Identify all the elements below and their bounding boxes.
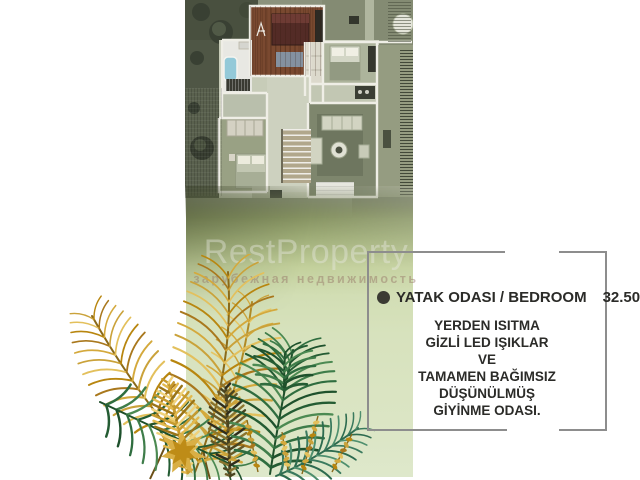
railing-hatch [400, 50, 413, 197]
room-header: YATAK ODASI / BEDROOM 32.50 m2 [377, 288, 605, 306]
feature-line: TAMAMEN BAĞIMSIZ DÜŞÜNÜLMÜŞ [371, 368, 603, 402]
wood-floor-texture [250, 6, 324, 76]
page: RestProperty зарубежная недвижимость YAT… [0, 0, 640, 480]
box-border-right [605, 251, 607, 431]
deck-hatch [388, 2, 411, 42]
feature-list: YERDEN ISITMA GİZLİ LED IŞIKLAR VE TAMAM… [371, 317, 603, 419]
room-area: 32.50 m2 [603, 288, 640, 306]
box-border-bottom-left [367, 429, 507, 431]
garden-texture [185, 88, 222, 196]
feature-line: YERDEN ISITMA [371, 317, 603, 334]
room-title: YATAK ODASI / BEDROOM [396, 289, 587, 306]
staircase [281, 129, 311, 183]
feature-line: GİZLİ LED IŞIKLAR [371, 334, 603, 351]
feature-line: GİYİNME ODASI. [371, 402, 603, 419]
box-border-left [367, 251, 369, 431]
box-border-top-right [559, 251, 607, 253]
box-border-top-left [367, 251, 505, 253]
bullet-icon [377, 291, 390, 304]
bath-mat-texture [226, 79, 250, 91]
bedroom-left [219, 118, 267, 192]
box-border-bottom-right [559, 429, 607, 431]
room-info-box: YATAK ODASI / BEDROOM 32.50 m2 YERDEN IS… [367, 251, 607, 431]
feature-line: VE [371, 351, 603, 368]
